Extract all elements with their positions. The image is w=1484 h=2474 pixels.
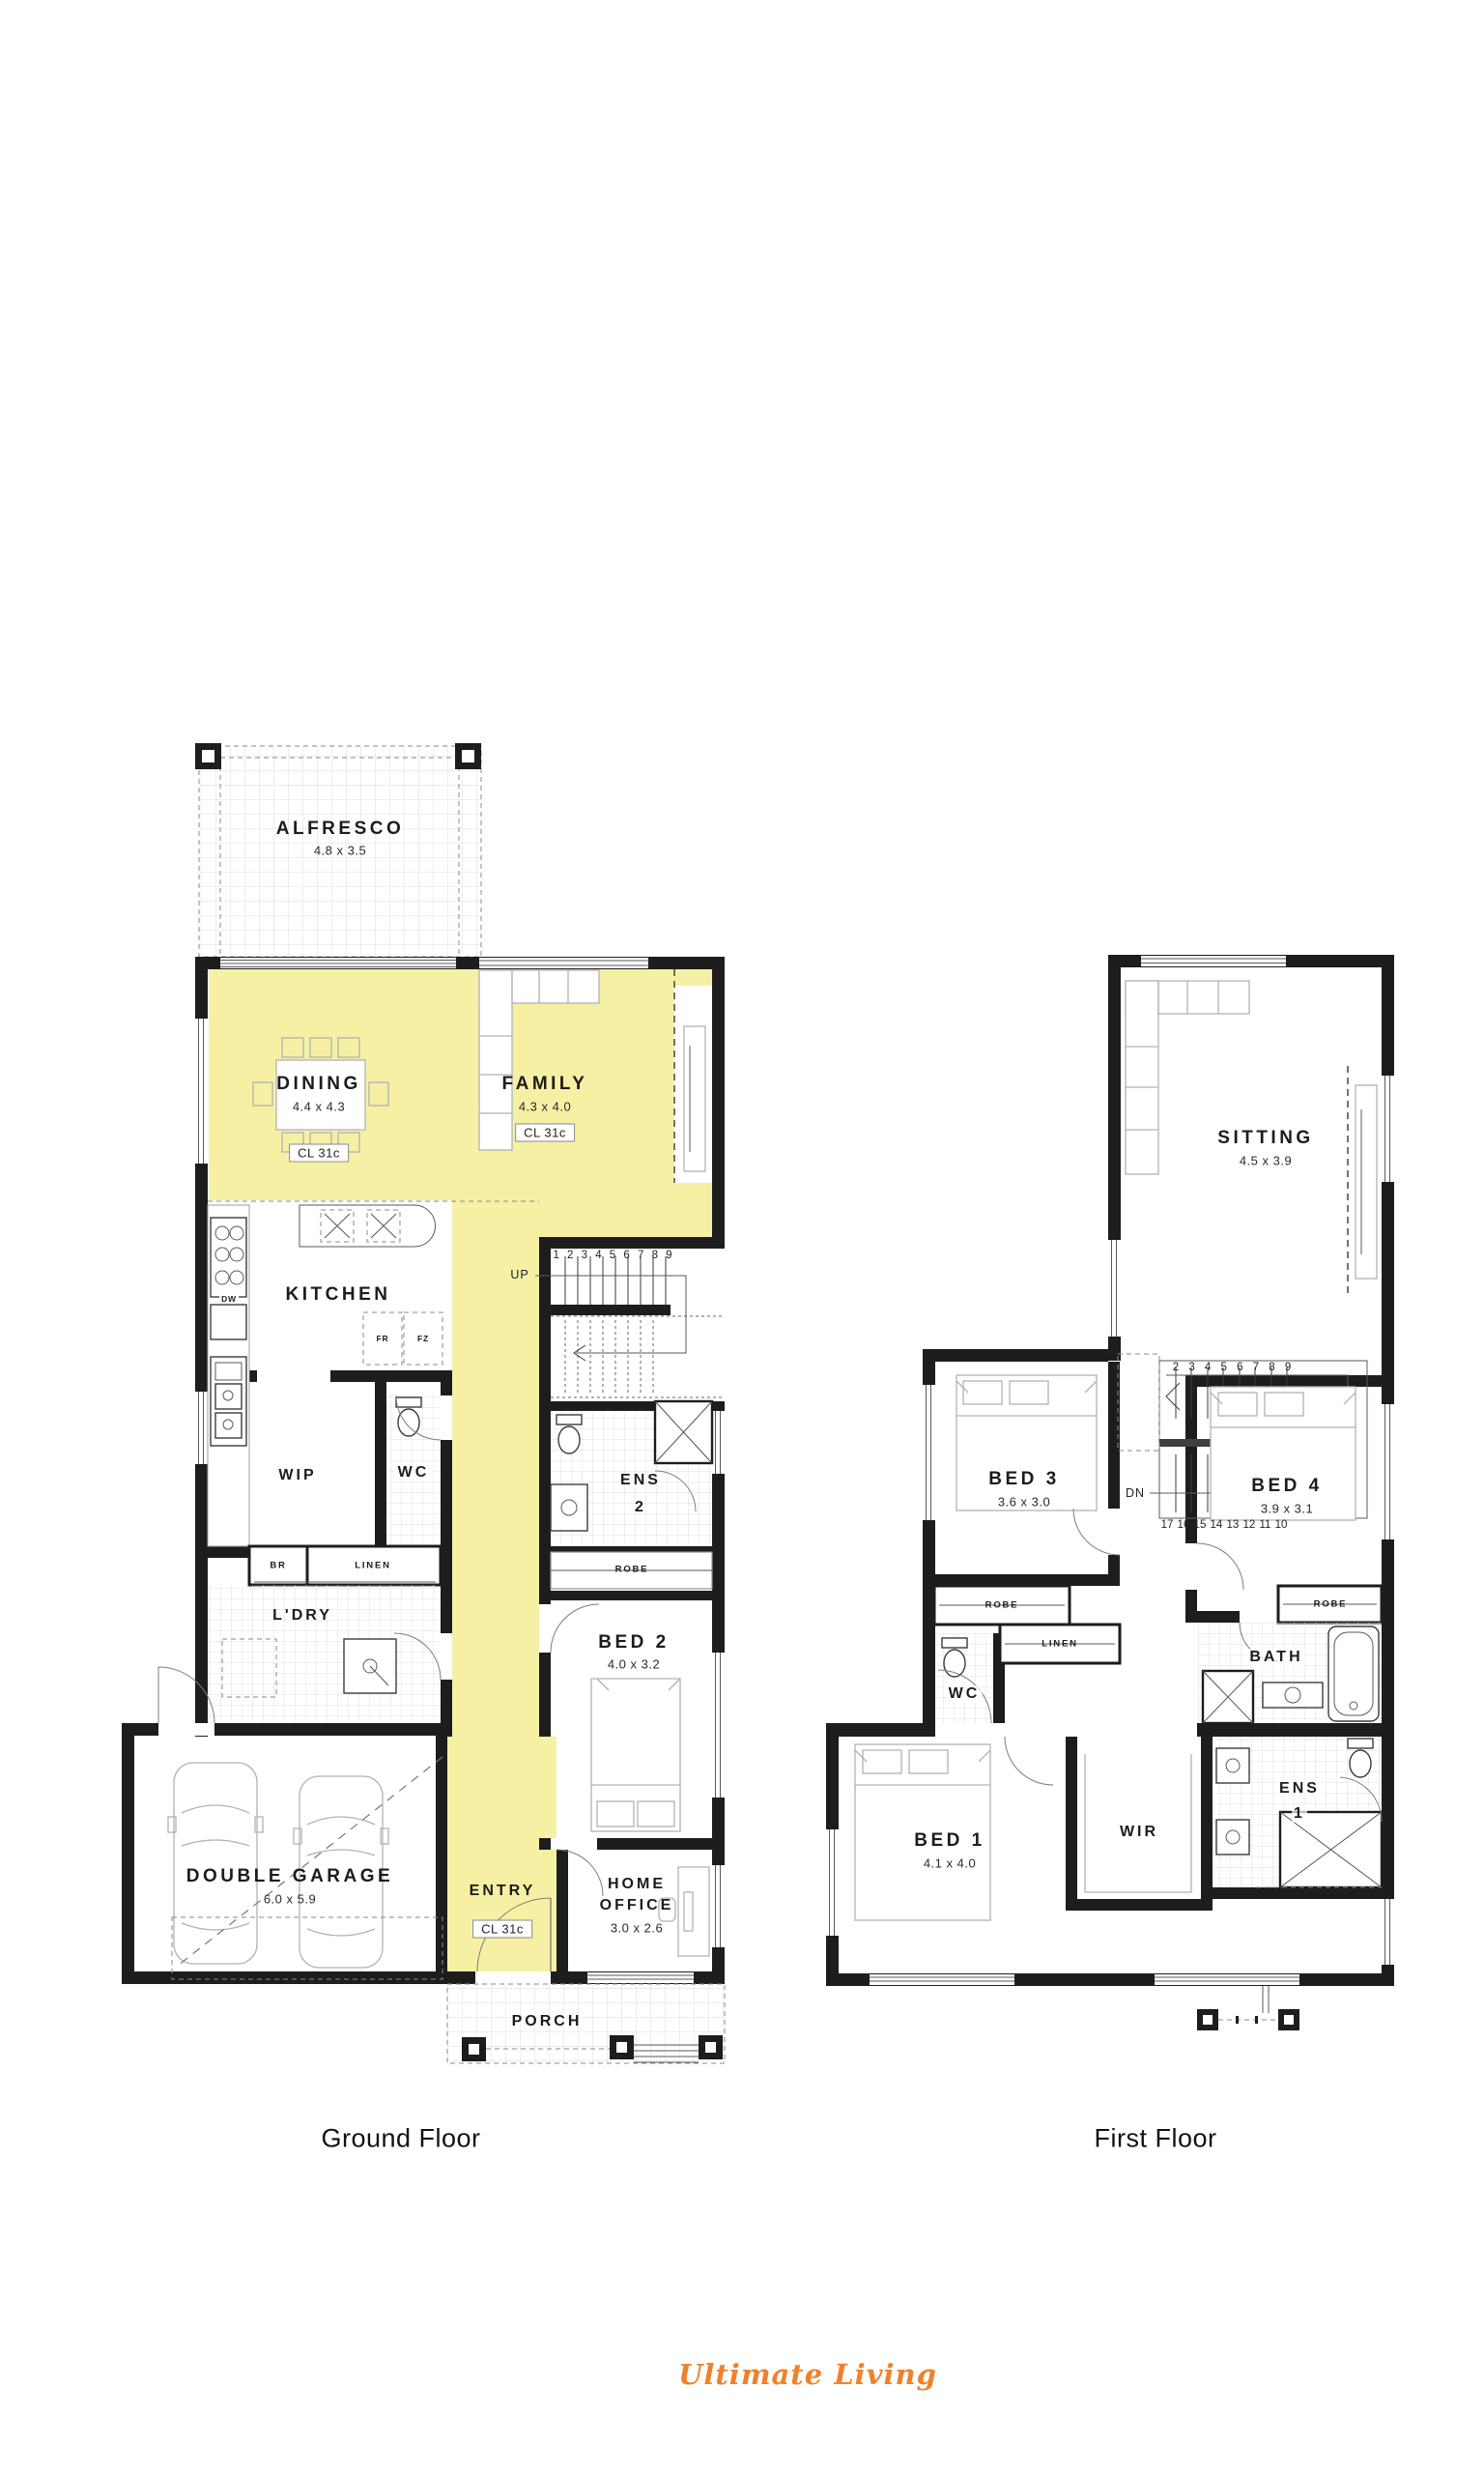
kitchen-bench bbox=[208, 1205, 249, 1546]
entry-ceiling-tag: CL 31c bbox=[472, 1920, 532, 1939]
vanity-icon bbox=[551, 1484, 587, 1531]
bed-icon bbox=[956, 1375, 1097, 1510]
balcony-posts bbox=[1197, 1986, 1299, 2030]
laundry-label: L'DRY bbox=[272, 1607, 332, 1625]
kitchen-label: KITCHEN bbox=[286, 1284, 391, 1306]
dining-ceiling-tag: CL 31c bbox=[289, 1144, 349, 1163]
first-floor-drawing bbox=[826, 921, 1425, 2129]
freezer-label: FZ bbox=[417, 1334, 429, 1343]
alfresco-label: ALFRESCO bbox=[276, 819, 405, 840]
bed3-dims: 3.6 x 3.0 bbox=[998, 1495, 1050, 1510]
family-dims: 4.3 x 4.0 bbox=[519, 1100, 571, 1114]
first-stair-numbers-bottom: 17 16 15 14 13 12 11 10 bbox=[1161, 1519, 1288, 1531]
bed3-label: BED 3 bbox=[988, 1469, 1059, 1490]
laundry-room bbox=[208, 1585, 441, 1723]
robe-label: ROBE bbox=[615, 1565, 649, 1575]
bed1-room bbox=[855, 1737, 1053, 1920]
vanity-icon bbox=[1263, 1683, 1323, 1708]
basin-icon bbox=[1216, 1820, 1249, 1855]
ens2-label: ENS bbox=[620, 1472, 661, 1489]
sitting-dims: 4.5 x 3.9 bbox=[1240, 1154, 1292, 1168]
entry-label: ENTRY bbox=[470, 1883, 536, 1900]
first-stair-numbers-top: 2 3 4 5 6 7 8 9 bbox=[1173, 1362, 1292, 1373]
toilet-icon bbox=[398, 1409, 419, 1436]
wir-label: WIR bbox=[1120, 1824, 1158, 1841]
bed3-robe-label: ROBE bbox=[985, 1600, 1019, 1611]
first-wc bbox=[935, 1633, 993, 1723]
bath-room bbox=[1197, 1623, 1382, 1723]
family-ceiling-tag: CL 31c bbox=[515, 1124, 575, 1142]
bed1-dims: 4.1 x 4.0 bbox=[924, 1856, 976, 1871]
car-icon bbox=[168, 1763, 263, 1964]
toilet-icon bbox=[1350, 1750, 1371, 1777]
garage-label: DOUBLE GARAGE bbox=[186, 1866, 393, 1887]
dishwasher-icon bbox=[211, 1305, 246, 1339]
wip-label: WIP bbox=[278, 1467, 316, 1484]
ens1-label: ENS bbox=[1277, 1780, 1322, 1798]
sitting-label: SITTING bbox=[1217, 1128, 1313, 1149]
bed4-robe-label: ROBE bbox=[1314, 1599, 1348, 1610]
bed-icon bbox=[1211, 1387, 1356, 1520]
wc-label: WC bbox=[395, 1464, 433, 1482]
desk-icon bbox=[678, 1867, 709, 1956]
monitor-icon bbox=[684, 1892, 693, 1931]
ground-floor-caption: Ground Floor bbox=[321, 2124, 480, 2154]
home-office-label-1: HOME bbox=[608, 1876, 666, 1893]
dn-label: DN bbox=[1123, 1486, 1148, 1500]
first-wc-label: WC bbox=[947, 1685, 983, 1703]
home-office-dims: 3.0 x 2.6 bbox=[611, 1921, 663, 1936]
basin-icon bbox=[1216, 1748, 1249, 1783]
bed4-dims: 3.9 x 3.1 bbox=[1261, 1502, 1313, 1516]
alfresco-dims: 4.8 x 3.5 bbox=[314, 844, 366, 858]
br-label: BR bbox=[270, 1561, 286, 1571]
bed2-dims: 4.0 x 3.2 bbox=[608, 1657, 660, 1672]
floorplan-page: ALFRESCO 4.8 x 3.5 DINING 4.4 x 4.3 CL 3… bbox=[0, 0, 1484, 2474]
garage-dims: 6.0 x 5.9 bbox=[264, 1892, 316, 1907]
bath-label: BATH bbox=[1247, 1649, 1304, 1666]
ground-floor-plan: ALFRESCO 4.8 x 3.5 DINING 4.4 x 4.3 CL 3… bbox=[114, 727, 742, 2070]
dining-label: DINING bbox=[276, 1074, 361, 1095]
home-office-label-2: OFFICE bbox=[600, 1897, 674, 1914]
bed3-room bbox=[956, 1375, 1120, 1555]
fridge-freezer bbox=[363, 1312, 442, 1365]
bed2-label: BED 2 bbox=[598, 1632, 669, 1654]
bed-icon bbox=[591, 1679, 680, 1831]
bed1-label: BED 1 bbox=[914, 1830, 985, 1852]
dining-dims: 4.4 x 4.3 bbox=[293, 1100, 345, 1114]
first-linen-label: LINEN bbox=[1042, 1639, 1078, 1650]
ground-stairs bbox=[535, 1249, 725, 1401]
dishwasher-label: DW bbox=[219, 1294, 239, 1304]
ens1-number: 1 bbox=[1292, 1805, 1307, 1823]
porch-area bbox=[447, 1984, 725, 2063]
fridge-label: FR bbox=[377, 1334, 389, 1343]
bed4-label: BED 4 bbox=[1251, 1476, 1322, 1497]
bathtub-icon bbox=[1328, 1626, 1379, 1721]
linen-label: LINEN bbox=[355, 1561, 391, 1571]
brand-logo: Ultimate Living bbox=[678, 2358, 937, 2391]
ground-stair-numbers: 1 2 3 4 5 6 7 8 9 bbox=[553, 1250, 671, 1261]
up-label: UP bbox=[507, 1268, 531, 1281]
sitting-tv-unit bbox=[1348, 1066, 1377, 1298]
family-label: FAMILY bbox=[502, 1074, 588, 1095]
first-floor-plan: SITTING 4.5 x 3.9 2 3 4 5 6 7 8 9 DN 17 … bbox=[826, 921, 1425, 2129]
porch-label: PORCH bbox=[512, 2013, 583, 2030]
ens2-number: 2 bbox=[635, 1499, 646, 1516]
toilet-icon bbox=[558, 1426, 580, 1453]
first-floor-caption: First Floor bbox=[1095, 2124, 1217, 2154]
